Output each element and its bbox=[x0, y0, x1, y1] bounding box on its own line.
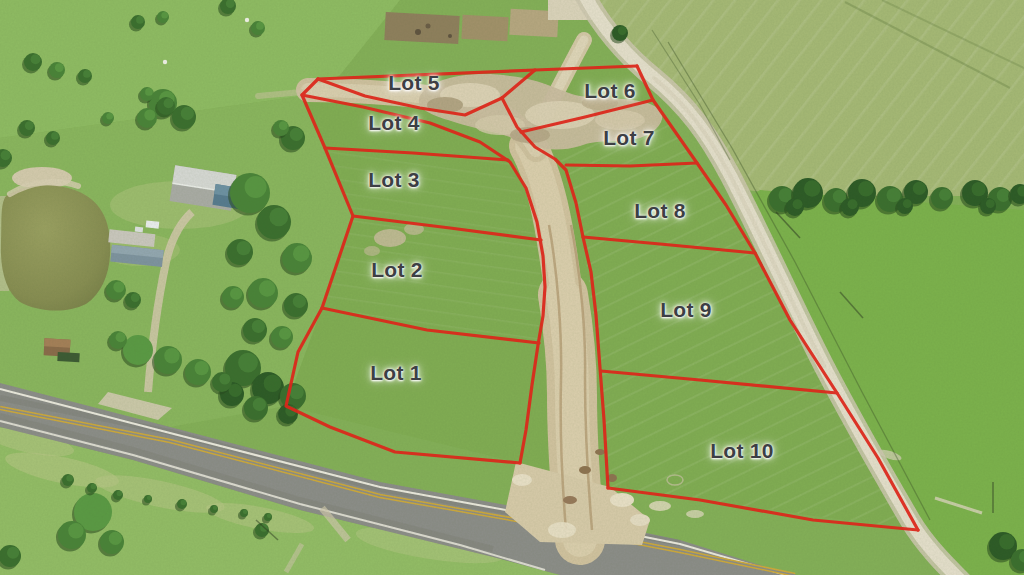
aerial-lot-photo: Lot 1Lot 2Lot 3Lot 4Lot 5Lot 6Lot 7Lot 8… bbox=[0, 0, 1024, 575]
aerial-photo-canvas bbox=[0, 0, 1024, 575]
photo-grain-overlay bbox=[0, 0, 1024, 575]
